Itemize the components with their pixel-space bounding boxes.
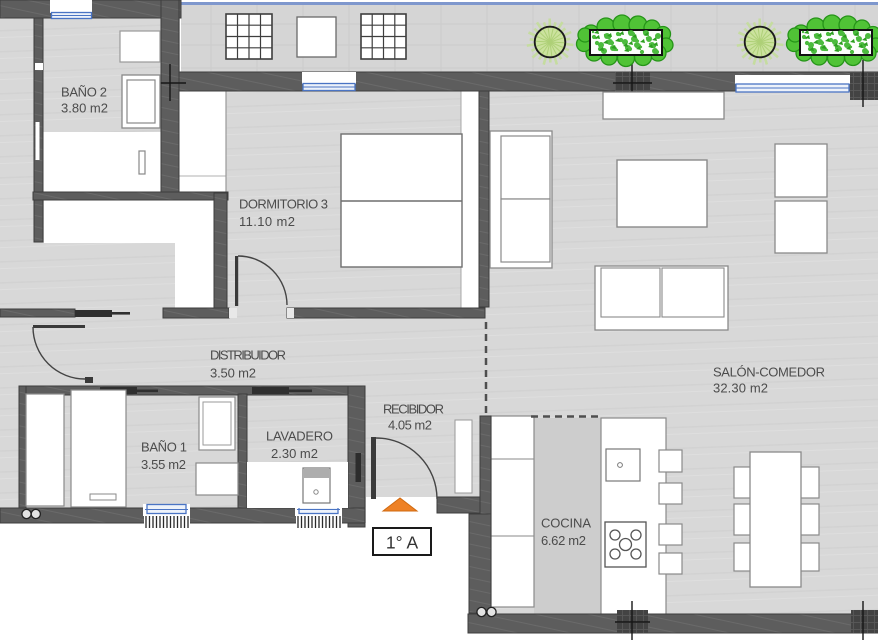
svg-text:32.30 m2: 32.30 m2: [713, 381, 768, 396]
svg-text:DISTRIBUIDOR: DISTRIBUIDOR: [210, 348, 286, 363]
svg-text:DORMITORIO 3: DORMITORIO 3: [239, 197, 328, 212]
svg-text:6.62 m2: 6.62 m2: [541, 533, 586, 548]
svg-text:3.55 m2: 3.55 m2: [141, 457, 186, 472]
svg-text:BAÑO 1: BAÑO 1: [141, 440, 187, 455]
svg-text:BAÑO 2: BAÑO 2: [61, 85, 107, 100]
svg-text:COCINA: COCINA: [541, 516, 591, 531]
svg-text:SALÓN-COMEDOR: SALÓN-COMEDOR: [713, 365, 825, 380]
svg-text:2.30 m2: 2.30 m2: [271, 446, 318, 461]
svg-text:3.50 m2: 3.50 m2: [210, 366, 256, 381]
svg-text:11.10 m2: 11.10 m2: [239, 214, 295, 229]
svg-text:4.05 m2: 4.05 m2: [388, 418, 432, 433]
svg-text:RECIBIDOR: RECIBIDOR: [383, 402, 444, 417]
svg-text:1° A: 1° A: [386, 533, 419, 553]
svg-text:LAVADERO: LAVADERO: [266, 429, 333, 444]
svg-text:3.80 m2: 3.80 m2: [61, 101, 108, 116]
